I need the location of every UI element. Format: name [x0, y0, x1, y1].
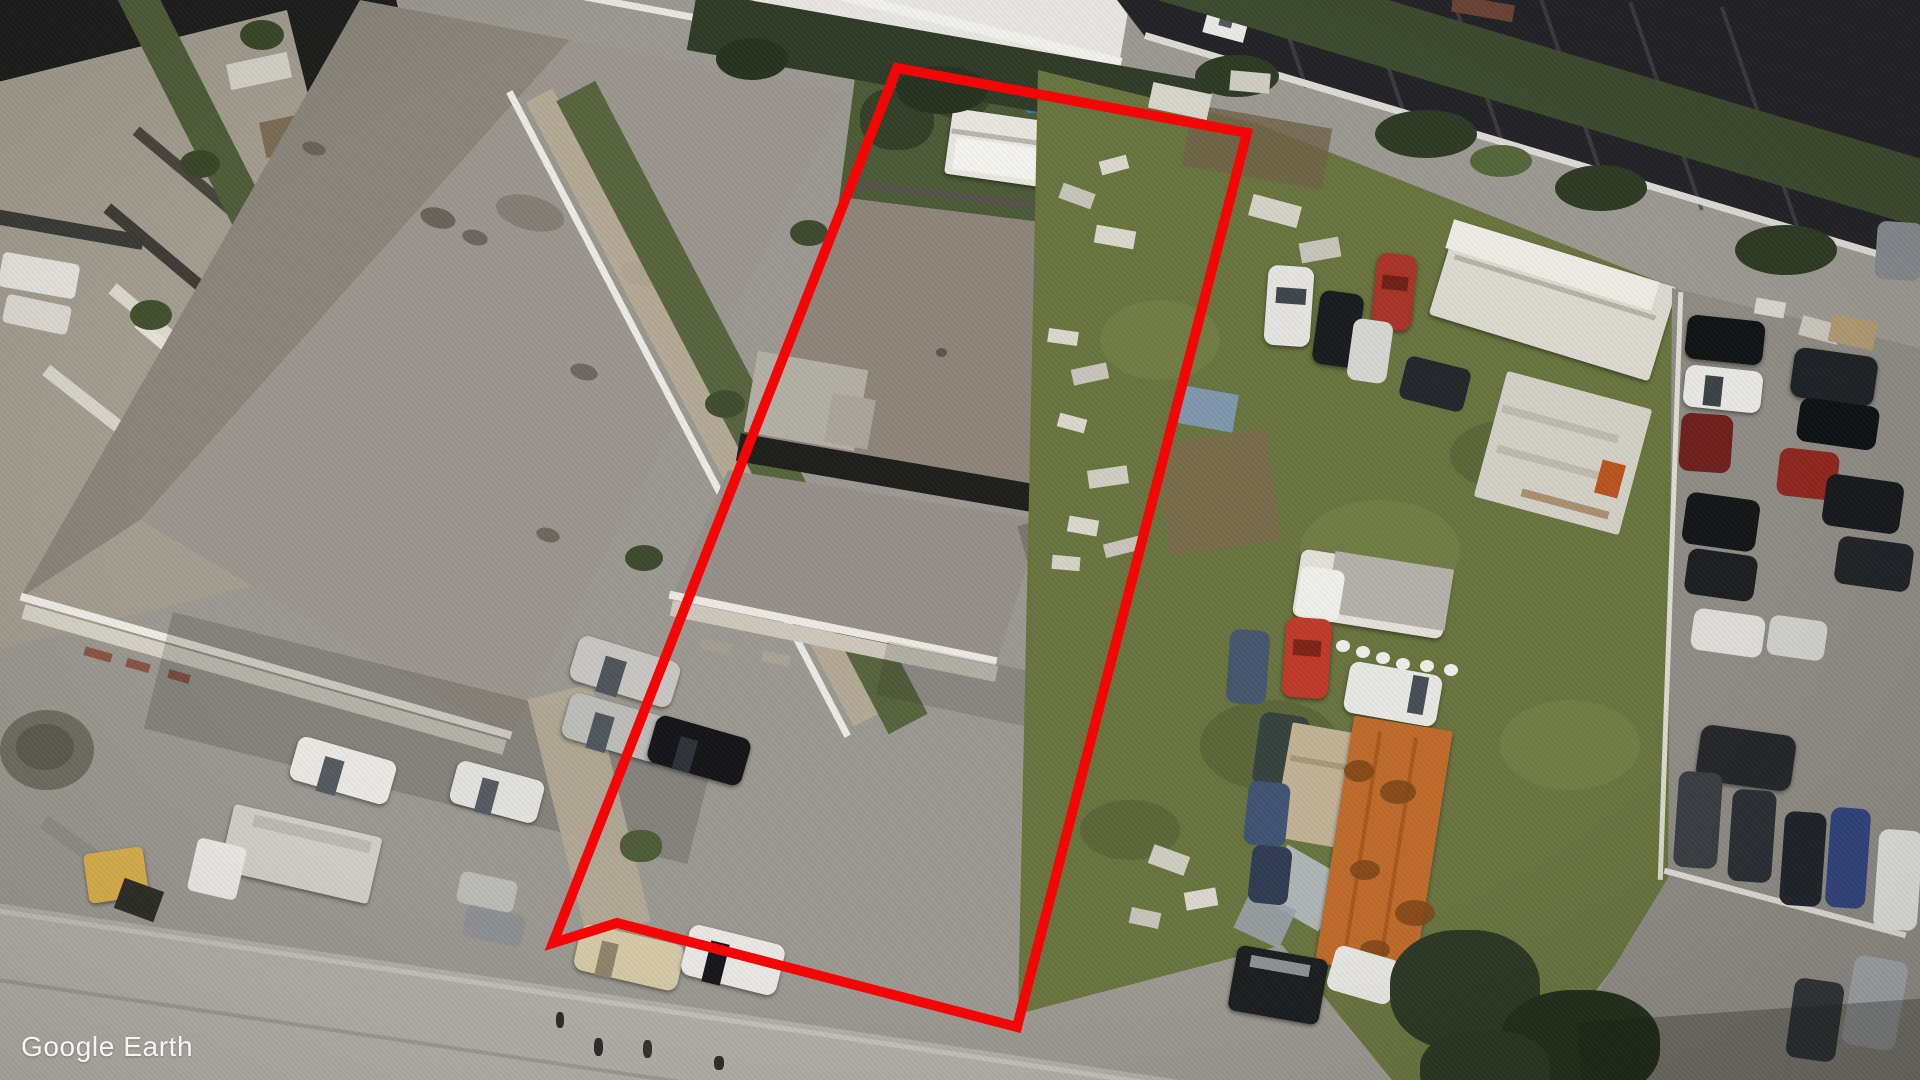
pedestrian — [714, 1056, 724, 1070]
car-dark-lot — [1779, 811, 1827, 908]
car-windshield — [1381, 275, 1408, 292]
dirt-patch — [1155, 429, 1281, 555]
hedge-bump-light — [1470, 145, 1532, 177]
car-windshield — [1275, 287, 1306, 305]
google-earth-watermark: Google Earth — [21, 1031, 193, 1063]
car-white-lot — [1682, 364, 1764, 414]
suv-black — [1684, 314, 1766, 366]
bush — [620, 830, 662, 862]
grass-clump — [705, 390, 745, 418]
car-blue-yard — [1225, 629, 1270, 706]
car-white-lot — [1765, 614, 1828, 662]
car-windshield — [1292, 639, 1321, 657]
car-black-lot — [1833, 535, 1915, 593]
satellite-imagery — [0, 0, 1920, 1080]
grass-bush — [240, 20, 284, 50]
car-blue-yard2 — [1243, 780, 1291, 848]
truck-cab-white — [187, 837, 248, 901]
car-dark-lot — [1673, 771, 1724, 870]
van-cab-white — [1294, 565, 1346, 623]
car-white-suv — [1346, 318, 1394, 385]
roof-vent — [936, 348, 947, 357]
grass-texture — [1500, 700, 1640, 790]
junk-debris — [1229, 70, 1271, 93]
grass-bush — [180, 150, 220, 178]
barrel-white — [1420, 660, 1434, 672]
car-blue-yard3 — [1247, 844, 1293, 906]
car-red-yard2 — [1281, 616, 1332, 699]
car-blue-lot — [1825, 807, 1872, 910]
pedestrian — [594, 1038, 603, 1056]
container-rust — [1350, 860, 1380, 880]
grass-clump — [790, 220, 828, 246]
hedge-bump — [716, 38, 788, 80]
container-rust — [1380, 780, 1416, 804]
wall-stripe — [83, 646, 112, 662]
grass-clump — [625, 545, 663, 571]
pedestrian — [643, 1040, 652, 1058]
hedge-bump — [1375, 110, 1477, 158]
grass-texture — [1100, 300, 1220, 380]
wall-door — [761, 650, 791, 666]
car-windshield — [1702, 375, 1723, 407]
car-black-lot — [1681, 491, 1762, 553]
car-black-lot — [1683, 547, 1759, 602]
barrel-white — [1376, 652, 1390, 664]
container-rust — [1395, 900, 1435, 926]
hedge-bump — [1555, 165, 1647, 211]
pedestrian — [556, 1012, 564, 1028]
car-tan — [572, 923, 686, 993]
car-black-lot — [1821, 473, 1905, 535]
barrel-white — [1444, 664, 1458, 676]
bush-round-inner — [16, 724, 74, 770]
junk-debris — [1051, 555, 1080, 571]
car-darkred — [1678, 412, 1734, 473]
machine-dark — [114, 878, 164, 922]
container-rust — [1344, 760, 1374, 782]
car-white-lot — [1873, 829, 1920, 932]
google-earth-aerial-view[interactable]: Google Earth — [0, 0, 1920, 1080]
car-silver — [461, 904, 526, 948]
grass-bush — [130, 300, 172, 330]
barrel-white — [1396, 658, 1410, 670]
hedge-bump — [1735, 225, 1837, 275]
wall-door — [699, 638, 733, 655]
car-gray — [1874, 220, 1920, 281]
roof-concrete-step — [824, 393, 876, 450]
barrel-white — [1336, 640, 1350, 652]
car-white-yard — [1263, 264, 1314, 347]
car-white — [679, 923, 787, 997]
hedge-bump — [896, 66, 988, 114]
car-dark-lot — [1727, 789, 1777, 884]
wall-stripe — [125, 658, 151, 673]
barrel-white — [1356, 646, 1370, 658]
